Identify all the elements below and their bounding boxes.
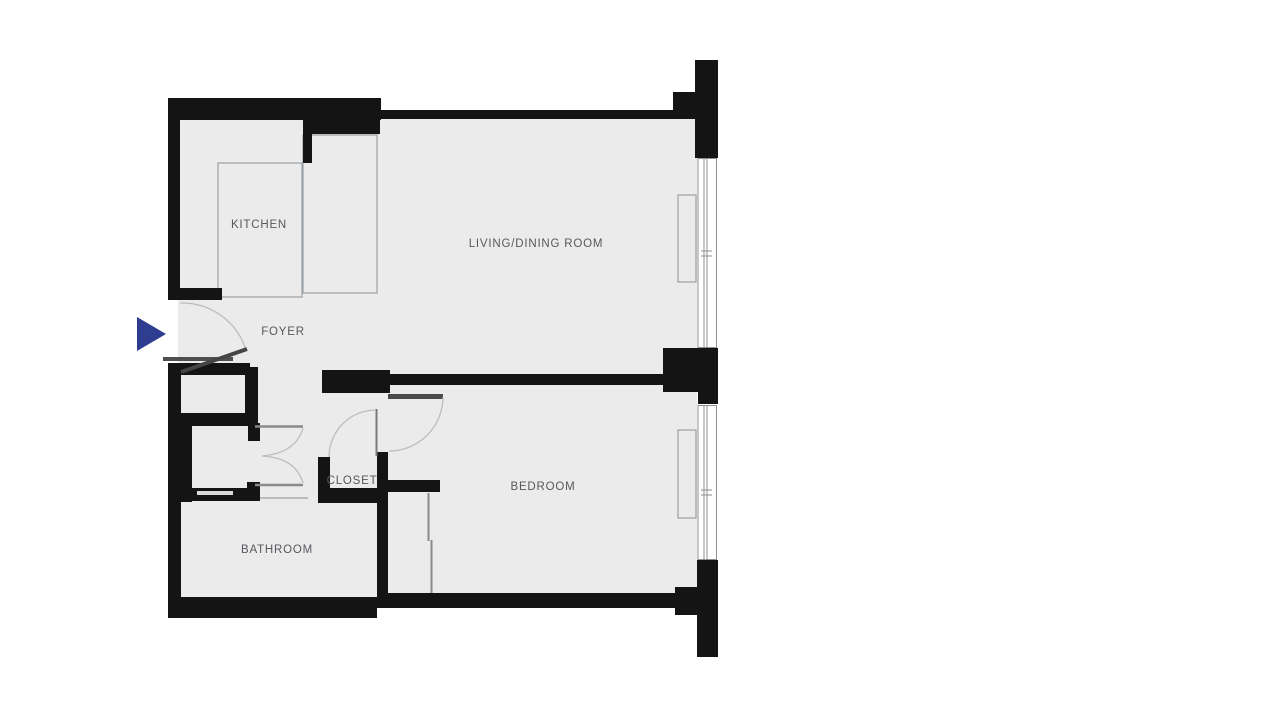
floors-layer bbox=[178, 117, 697, 598]
wall-segment bbox=[322, 370, 390, 393]
room-label-bathroom: BATHROOM bbox=[241, 544, 313, 556]
room-label-bedroom: BEDROOM bbox=[510, 481, 575, 493]
room-label-kitchen: KITCHEN bbox=[231, 219, 287, 231]
wall-segment bbox=[168, 98, 381, 120]
wall-segment bbox=[168, 288, 222, 300]
wall-segment bbox=[673, 92, 695, 119]
wall-segment bbox=[381, 110, 695, 119]
wall-segment bbox=[377, 452, 388, 608]
wall-segment bbox=[245, 367, 258, 416]
wall-segment bbox=[675, 587, 697, 615]
threshold-stripe bbox=[197, 491, 233, 495]
bedroom-door-leaf bbox=[388, 394, 443, 399]
wall-segment bbox=[303, 120, 312, 163]
wall-segment bbox=[303, 118, 380, 134]
wall-segment bbox=[698, 392, 718, 404]
wall-segment bbox=[697, 560, 718, 657]
floor-plan: KITCHEN LIVING/DINING ROOM FOYER CLOSET … bbox=[0, 0, 1280, 720]
wall-segment bbox=[168, 413, 192, 502]
entry-arrow-icon bbox=[137, 317, 166, 351]
window-glazing-lines bbox=[698, 405, 717, 560]
room-label-foyer: FOYER bbox=[261, 326, 305, 338]
wall-segment bbox=[663, 348, 718, 392]
wall-segment bbox=[318, 488, 383, 503]
room-label-closet: CLOSET bbox=[327, 475, 378, 487]
wall-segment bbox=[168, 597, 377, 618]
wall-segment bbox=[695, 60, 718, 158]
window-glazing-lines bbox=[698, 158, 717, 348]
wall-segment bbox=[385, 480, 440, 492]
room-label-living: LIVING/DINING ROOM bbox=[469, 238, 604, 250]
wall-segment bbox=[177, 413, 258, 426]
wall-segment bbox=[377, 593, 675, 608]
wall-segment bbox=[168, 98, 180, 300]
wall-segment bbox=[385, 374, 665, 385]
